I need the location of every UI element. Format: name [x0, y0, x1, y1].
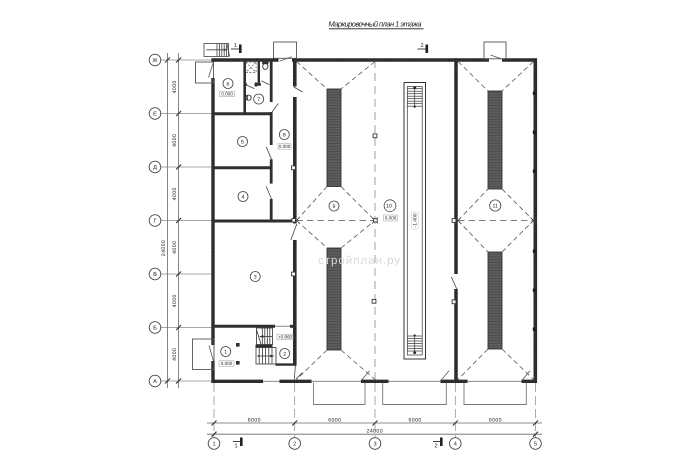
svg-text:Г: Г [153, 219, 156, 225]
svg-text:6000: 6000 [248, 417, 261, 423]
svg-text:5: 5 [534, 442, 537, 448]
svg-text:4000: 4000 [172, 348, 178, 361]
svg-text:+0.860: +0.860 [278, 334, 293, 339]
svg-text:4000: 4000 [172, 294, 178, 307]
svg-text:6000: 6000 [409, 417, 422, 423]
svg-text:1: 1 [234, 43, 237, 49]
svg-text:7: 7 [257, 97, 260, 103]
svg-text:Б: Б [153, 326, 157, 332]
svg-text:0.000: 0.000 [279, 144, 291, 149]
svg-text:стройплан.ру: стройплан.ру [318, 255, 401, 267]
svg-text:24000: 24000 [161, 240, 167, 256]
svg-text:24000: 24000 [367, 429, 383, 435]
svg-text:2: 2 [293, 442, 296, 448]
svg-text:6000: 6000 [489, 417, 502, 423]
svg-text:А: А [153, 379, 157, 385]
svg-text:4: 4 [454, 442, 457, 448]
svg-text:3: 3 [373, 442, 376, 448]
svg-text:Д: Д [153, 165, 157, 171]
svg-text:11: 11 [493, 203, 498, 209]
svg-text:Ж: Ж [152, 58, 158, 64]
svg-text:0.000: 0.000 [385, 216, 397, 221]
svg-text:10: 10 [386, 203, 392, 209]
svg-text:В: В [153, 272, 157, 278]
svg-text:Е: Е [153, 112, 157, 118]
svg-text:2: 2 [434, 443, 437, 449]
svg-text:6000: 6000 [328, 417, 341, 423]
svg-text:4: 4 [242, 194, 245, 200]
svg-text:0.000: 0.000 [221, 361, 233, 366]
svg-text:1: 1 [212, 442, 215, 448]
svg-text:4000: 4000 [172, 134, 178, 147]
svg-text:2: 2 [283, 351, 286, 357]
svg-text:1: 1 [234, 443, 237, 449]
svg-text:2: 2 [420, 43, 423, 49]
svg-text:4000: 4000 [172, 241, 178, 254]
svg-text:3: 3 [254, 274, 257, 280]
svg-text:4000: 4000 [172, 80, 178, 93]
svg-text:9: 9 [333, 204, 336, 210]
svg-text:0.000: 0.000 [221, 92, 233, 97]
svg-text:4000: 4000 [172, 187, 178, 200]
svg-text:Маркировочный план 1 этажа: Маркировочный план 1 этажа [329, 19, 422, 28]
svg-text:6: 6 [227, 81, 230, 87]
svg-text:8: 8 [283, 132, 286, 138]
svg-text:-1.400: -1.400 [413, 213, 419, 227]
svg-text:5: 5 [241, 139, 244, 145]
svg-text:1: 1 [224, 349, 227, 355]
